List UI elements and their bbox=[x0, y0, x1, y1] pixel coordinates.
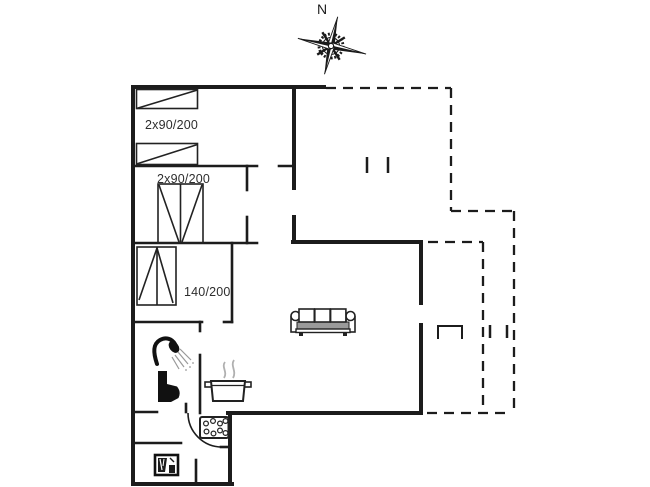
floor-plan: 2x90/200 2x90/200 140/200 bbox=[0, 0, 650, 487]
cooking-pot-icon bbox=[205, 360, 251, 401]
bed-size-label-bedroom1: 2x90/200 bbox=[145, 118, 198, 132]
compass-north-label: N bbox=[317, 1, 327, 17]
stove-burners-icon bbox=[200, 417, 229, 438]
bed-icon-140 bbox=[137, 247, 176, 305]
bed-size-label-bedroom2: 2x90/200 bbox=[157, 172, 210, 186]
sofa-icon bbox=[291, 309, 355, 336]
toilet-icon bbox=[158, 371, 180, 402]
floor-plan-page: 2x90/200 2x90/200 140/200 bbox=[0, 0, 650, 487]
bed-icon-single-2 bbox=[137, 144, 198, 165]
bed-icon-double bbox=[158, 184, 203, 243]
bed-icon-single-1 bbox=[137, 90, 198, 109]
compass-rose-icon bbox=[291, 9, 372, 82]
bed-size-label-bedroom3: 140/200 bbox=[184, 285, 231, 299]
shower-icon bbox=[154, 338, 194, 371]
terrace-post-marks bbox=[367, 157, 507, 338]
terrace-step-mark bbox=[438, 326, 462, 339]
washing-machine-icon bbox=[155, 455, 178, 475]
